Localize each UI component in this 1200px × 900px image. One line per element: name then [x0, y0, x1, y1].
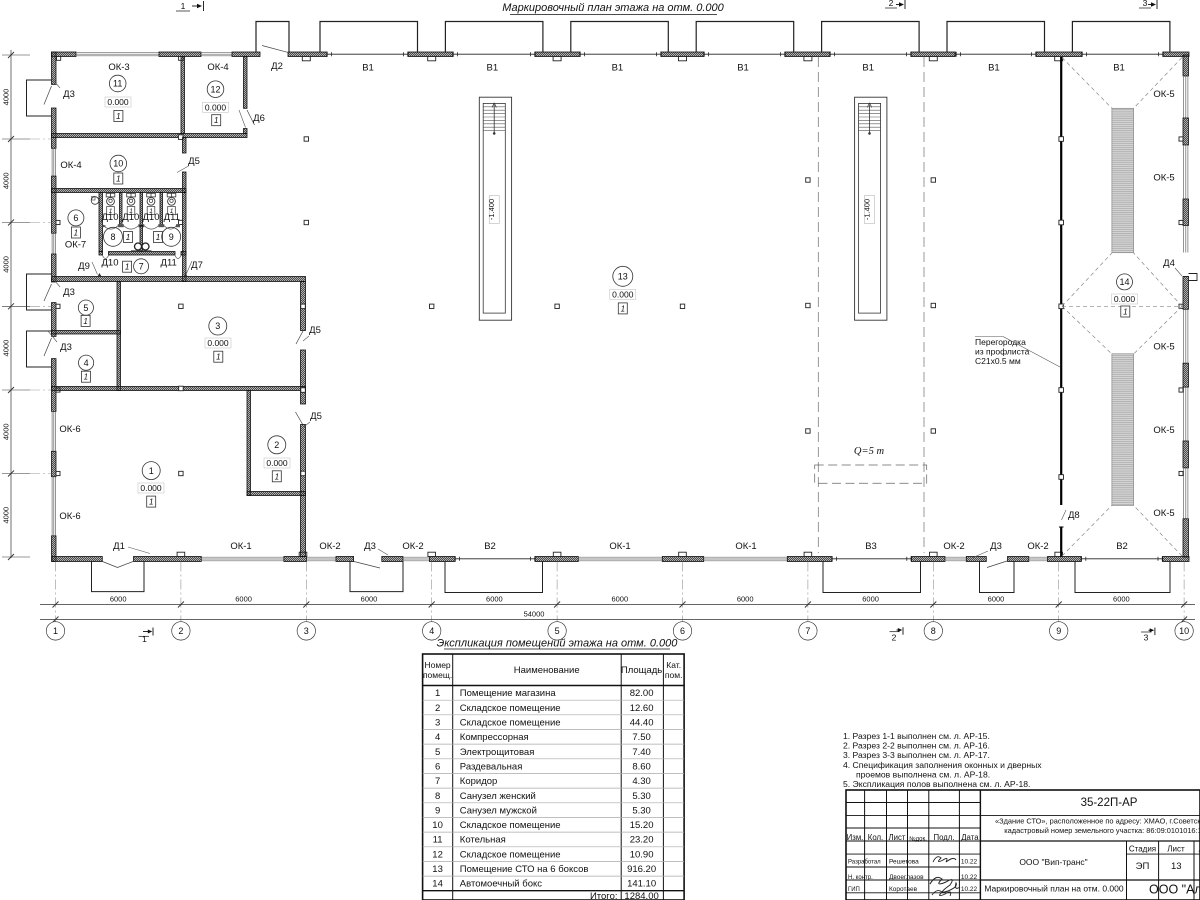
svg-text:-1.400: -1.400 [487, 199, 496, 220]
svg-text:из профлиста: из профлиста [975, 347, 1030, 357]
svg-text:Коротаев: Коротаев [889, 886, 918, 893]
svg-text:Решетова: Решетова [889, 859, 919, 866]
svg-text:Складское помещение: Складское помещение [460, 703, 561, 714]
svg-text:3: 3 [435, 718, 440, 729]
svg-text:15.20: 15.20 [630, 820, 654, 831]
svg-text:1: 1 [181, 1, 186, 11]
svg-text:Д9: Д9 [78, 261, 90, 272]
svg-text:проемов выполнена см. л. АР-18: проемов выполнена см. л. АР-18. [856, 769, 990, 779]
svg-text:Маркировочный план на отм. 0.0: Маркировочный план на отм. 0.000 [984, 884, 1124, 894]
svg-text:В1: В1 [362, 63, 374, 74]
svg-text:Санузел мужской: Санузел мужской [460, 805, 537, 816]
svg-text:44.40: 44.40 [630, 718, 654, 729]
svg-text:Д11: Д11 [164, 212, 180, 223]
svg-text:Экспликация помещений этажа на: Экспликация помещений этажа на отм. 0.00… [437, 638, 679, 650]
svg-text:Д3: Д3 [990, 541, 1002, 552]
svg-text:ОК-1: ОК-1 [230, 541, 251, 552]
svg-text:0.000: 0.000 [140, 483, 162, 493]
svg-text:Д8: Д8 [1068, 510, 1080, 521]
svg-text:0.000: 0.000 [1114, 294, 1136, 304]
svg-text:Подл.: Подл. [933, 833, 954, 842]
svg-text:2: 2 [889, 0, 894, 8]
svg-text:Д1: Д1 [113, 541, 125, 552]
svg-text:4000: 4000 [2, 89, 11, 106]
svg-text:7: 7 [139, 262, 144, 272]
svg-text:ОК-2: ОК-2 [1027, 541, 1048, 552]
svg-text:В1: В1 [737, 63, 749, 74]
svg-text:4.30: 4.30 [632, 776, 651, 787]
svg-text:5: 5 [435, 747, 440, 758]
svg-text:0.000: 0.000 [612, 290, 634, 300]
svg-text:916.20: 916.20 [627, 864, 656, 875]
svg-text:6000: 6000 [737, 595, 754, 604]
svg-text:14: 14 [432, 879, 443, 890]
svg-text:2: 2 [892, 633, 897, 643]
svg-text:10: 10 [432, 820, 443, 831]
svg-text:Санузел женский: Санузел женский [460, 791, 536, 802]
svg-text:4000: 4000 [2, 340, 11, 357]
svg-text:кадастровый номер земельного у: кадастровый номер земельного участка: 86… [1004, 826, 1200, 835]
svg-text:№док.: №док. [909, 836, 927, 843]
svg-text:3: 3 [215, 321, 220, 331]
svg-text:9: 9 [1056, 626, 1061, 636]
svg-text:С21х0.5 мм: С21х0.5 мм [975, 356, 1021, 366]
svg-text:5: 5 [83, 303, 88, 313]
svg-text:8: 8 [931, 626, 936, 636]
svg-text:В2: В2 [484, 541, 496, 552]
svg-text:4000: 4000 [2, 423, 11, 440]
svg-text:3: 3 [1144, 633, 1149, 643]
svg-text:11: 11 [433, 835, 443, 846]
svg-text:4: 4 [429, 626, 434, 636]
svg-text:1: 1 [621, 304, 625, 313]
svg-text:Дата: Дата [961, 833, 979, 842]
svg-text:Д2: Д2 [271, 61, 283, 72]
svg-text:1: 1 [84, 373, 88, 382]
svg-text:ОК-5: ОК-5 [1153, 425, 1174, 436]
svg-text:Разработал: Разработал [848, 860, 881, 866]
svg-text:1. Разрез 1-1 выполнен см. л.: 1. Разрез 1-1 выполнен см. л. АР-15. [843, 731, 990, 741]
svg-text:23.20: 23.20 [630, 835, 654, 846]
svg-text:4000: 4000 [2, 256, 11, 273]
svg-text:Д7: Д7 [191, 260, 203, 271]
svg-text:13: 13 [432, 864, 443, 875]
svg-text:1: 1 [216, 353, 220, 362]
svg-text:4000: 4000 [2, 172, 11, 189]
svg-text:4000: 4000 [2, 507, 11, 524]
svg-text:Коридор: Коридор [460, 776, 498, 787]
svg-text:1: 1 [53, 626, 58, 636]
svg-text:13: 13 [1171, 861, 1182, 872]
svg-text:0.000: 0.000 [266, 458, 288, 468]
svg-text:ОК-5: ОК-5 [1153, 173, 1174, 184]
svg-text:Лист: Лист [1167, 845, 1185, 854]
svg-text:ОК-3: ОК-3 [108, 62, 129, 73]
svg-text:6: 6 [680, 626, 685, 636]
svg-text:ОК-1: ОК-1 [609, 541, 630, 552]
svg-text:14: 14 [1119, 277, 1129, 287]
svg-text:4: 4 [435, 732, 440, 743]
svg-text:Автомоечный бокс: Автомоечный бокс [460, 879, 542, 890]
svg-text:1: 1 [74, 229, 78, 238]
svg-text:В1: В1 [1113, 63, 1125, 74]
svg-text:7.50: 7.50 [632, 732, 651, 743]
svg-text:ОК-2: ОК-2 [943, 541, 964, 552]
svg-text:Д3: Д3 [60, 342, 72, 353]
svg-text:6: 6 [435, 761, 440, 772]
svg-text:3: 3 [304, 626, 309, 636]
svg-text:Д10: Д10 [142, 212, 159, 223]
svg-text:Котельная: Котельная [460, 835, 506, 846]
svg-text:12.60: 12.60 [630, 703, 654, 714]
svg-text:Изм.: Изм. [847, 833, 864, 842]
svg-text:Маркировочный план этажа на от: Маркировочный план этажа на отм. 0.000 [502, 2, 724, 14]
svg-text:Д11: Д11 [161, 258, 177, 269]
svg-text:-1.400: -1.400 [863, 199, 872, 220]
svg-text:1: 1 [1123, 308, 1127, 317]
svg-text:помещ.: помещ. [423, 670, 452, 680]
svg-text:10.90: 10.90 [630, 849, 654, 860]
svg-text:6000: 6000 [361, 595, 378, 604]
svg-text:3. Разрез 3-3 выполнен см. л.: 3. Разрез 3-3 выполнен см. л. АР-17. [843, 750, 990, 760]
svg-text:1: 1 [142, 634, 147, 644]
svg-text:Д10: Д10 [101, 212, 118, 223]
svg-text:6000: 6000 [988, 595, 1005, 604]
svg-text:141.10: 141.10 [627, 879, 656, 890]
svg-text:Перегородка: Перегородка [975, 337, 1026, 347]
svg-text:12: 12 [210, 84, 220, 94]
svg-text:13: 13 [618, 272, 628, 282]
svg-text:0.000: 0.000 [205, 103, 227, 113]
svg-text:Складское помещение: Складское помещение [460, 718, 561, 729]
svg-text:ОК-2: ОК-2 [319, 541, 340, 552]
svg-text:ОК-6: ОК-6 [59, 511, 80, 522]
svg-text:ОК-7: ОК-7 [65, 240, 86, 251]
svg-text:7: 7 [805, 626, 810, 636]
svg-text:ОК-2: ОК-2 [402, 541, 423, 552]
svg-text:ОК-4: ОК-4 [60, 160, 81, 171]
svg-text:5.30: 5.30 [632, 805, 651, 816]
svg-text:1: 1 [116, 112, 120, 121]
svg-text:ЭП: ЭП [1136, 861, 1150, 872]
svg-text:2: 2 [274, 440, 279, 450]
svg-text:1: 1 [149, 466, 154, 476]
svg-text:5: 5 [555, 626, 560, 636]
svg-text:10: 10 [1179, 626, 1189, 636]
svg-text:Д5: Д5 [309, 325, 321, 336]
svg-text:8: 8 [110, 232, 115, 242]
svg-text:6: 6 [73, 213, 78, 223]
svg-text:2: 2 [435, 703, 440, 714]
svg-text:0.000: 0.000 [207, 338, 229, 348]
svg-text:ГИП: ГИП [848, 887, 860, 893]
svg-text:ОК-4: ОК-4 [207, 62, 228, 73]
svg-text:6000: 6000 [611, 595, 628, 604]
svg-text:1: 1 [275, 472, 279, 481]
svg-text:5. Экспликация полов выполнена: 5. Экспликация полов выполнена см. л. АР… [843, 779, 1030, 789]
svg-text:1284.00: 1284.00 [624, 891, 658, 900]
svg-text:9: 9 [169, 232, 174, 242]
svg-text:1: 1 [125, 263, 129, 272]
svg-text:Помещение СТО на 6 боксов: Помещение СТО на 6 боксов [460, 864, 589, 875]
svg-text:10.22: 10.22 [961, 874, 978, 881]
svg-text:Д5: Д5 [310, 411, 322, 422]
svg-text:В1: В1 [862, 63, 874, 74]
svg-text:ОК-1: ОК-1 [735, 541, 756, 552]
svg-text:4: 4 [84, 358, 89, 368]
svg-text:2. Разрез 2-2 выполнен см. л.: 2. Разрез 2-2 выполнен см. л. АР-16. [843, 741, 990, 751]
svg-text:ООО "Альянс": ООО "Альянс" [1149, 883, 1200, 897]
svg-text:1: 1 [214, 116, 218, 125]
svg-text:В2: В2 [1116, 541, 1128, 552]
svg-text:«Здание СТО», расположенное по: «Здание СТО», расположенное по адресу: Х… [995, 817, 1200, 826]
svg-text:9: 9 [435, 805, 440, 816]
svg-text:ОК-6: ОК-6 [59, 424, 80, 435]
svg-text:Наименование: Наименование [514, 665, 580, 676]
svg-text:Двоеглазов: Двоеглазов [889, 874, 924, 881]
svg-text:ОК-5: ОК-5 [1153, 508, 1174, 519]
svg-text:1: 1 [126, 233, 130, 242]
svg-text:Д4: Д4 [1163, 258, 1175, 269]
svg-text:Площадь: Площадь [621, 665, 662, 676]
svg-text:В1: В1 [612, 63, 624, 74]
svg-text:Помещение магазина: Помещение магазина [460, 688, 557, 699]
svg-text:12: 12 [432, 849, 443, 860]
svg-text:11: 11 [113, 79, 122, 89]
svg-text:1: 1 [149, 498, 153, 507]
svg-text:82.00: 82.00 [630, 688, 654, 699]
svg-text:Компрессорная: Компрессорная [460, 732, 529, 743]
svg-text:35-22П-АР: 35-22П-АР [1081, 797, 1138, 809]
svg-text:7: 7 [435, 776, 440, 787]
svg-text:В3: В3 [865, 541, 877, 552]
svg-text:Н. контр.: Н. контр. [848, 875, 873, 881]
svg-text:В1: В1 [988, 63, 1000, 74]
svg-text:1: 1 [83, 317, 87, 326]
svg-text:ОК-5: ОК-5 [1153, 89, 1174, 100]
svg-text:5.30: 5.30 [632, 791, 651, 802]
svg-text:Складское помещение: Складское помещение [460, 849, 561, 860]
svg-text:Д3: Д3 [364, 541, 376, 552]
svg-text:10.22: 10.22 [961, 859, 978, 866]
svg-text:пом.: пом. [665, 670, 683, 680]
svg-text:Итого:: Итого: [590, 891, 618, 900]
svg-text:Складское помещение: Складское помещение [460, 820, 561, 831]
svg-text:0.000: 0.000 [107, 97, 129, 107]
svg-text:Д5: Д5 [188, 156, 200, 167]
svg-text:1: 1 [156, 233, 160, 242]
svg-text:Стадия: Стадия [1129, 845, 1156, 854]
svg-text:4. Спецификация заполнения око: 4. Спецификация заполнения оконных и две… [843, 760, 1042, 770]
svg-text:Д6: Д6 [253, 113, 265, 124]
svg-text:Д10: Д10 [101, 258, 118, 269]
svg-text:В1: В1 [486, 63, 498, 74]
svg-text:3: 3 [1143, 0, 1148, 8]
svg-text:ООО "Вип-транс": ООО "Вип-транс" [1019, 857, 1087, 867]
svg-text:8: 8 [435, 791, 440, 802]
svg-text:6000: 6000 [486, 595, 503, 604]
svg-text:Кат.: Кат. [666, 660, 681, 670]
svg-text:1: 1 [435, 688, 440, 699]
svg-text:2: 2 [178, 626, 183, 636]
svg-text:Электрощитовая: Электрощитовая [460, 747, 535, 758]
svg-text:54000: 54000 [524, 610, 545, 619]
svg-text:Q=5 т: Q=5 т [854, 446, 885, 457]
svg-text:1: 1 [116, 175, 120, 184]
svg-text:6000: 6000 [110, 595, 127, 604]
svg-text:Раздевальная: Раздевальная [460, 761, 523, 772]
svg-text:10: 10 [113, 159, 123, 169]
svg-text:Д10: Д10 [122, 212, 139, 223]
svg-text:6000: 6000 [862, 595, 879, 604]
svg-text:Д3: Д3 [63, 89, 75, 100]
svg-text:6000: 6000 [235, 595, 252, 604]
svg-text:6000: 6000 [1113, 595, 1130, 604]
svg-text:Д3: Д3 [63, 287, 75, 298]
svg-text:10.22: 10.22 [961, 886, 978, 893]
svg-text:7.40: 7.40 [632, 747, 651, 758]
svg-text:ОК-5: ОК-5 [1153, 342, 1174, 353]
svg-text:Номер: Номер [425, 660, 451, 670]
svg-text:Лист: Лист [889, 833, 906, 842]
svg-text:8.60: 8.60 [632, 761, 651, 772]
svg-text:Кол.: Кол. [868, 833, 883, 842]
